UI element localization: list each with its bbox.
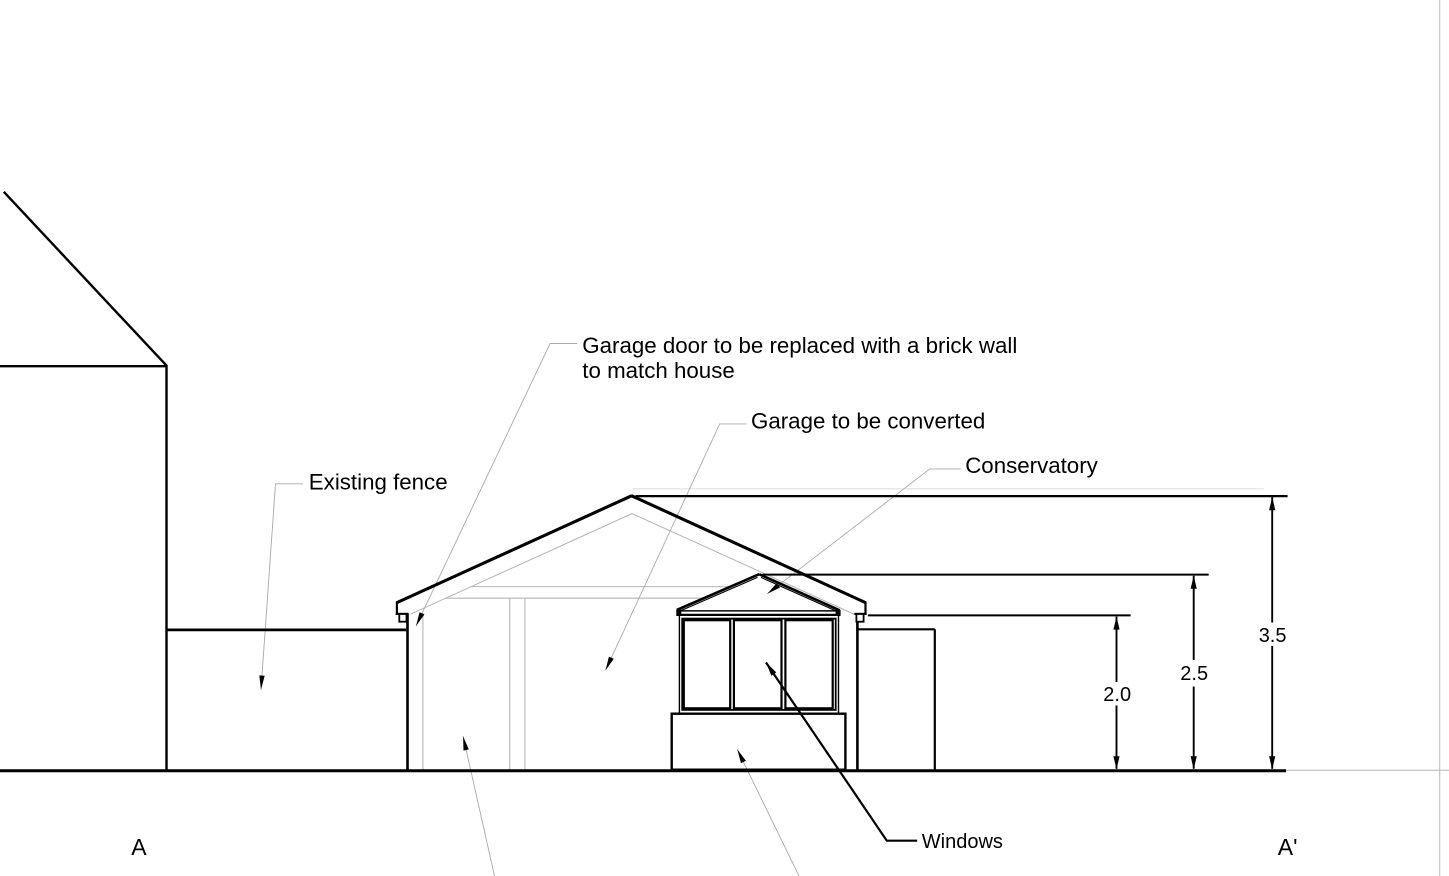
svg-text:Windows: Windows xyxy=(922,831,1003,853)
svg-text:A: A xyxy=(131,834,147,860)
svg-text:Existing fence: Existing fence xyxy=(309,470,448,495)
svg-text:A': A' xyxy=(1278,834,1298,860)
svg-text:to match house: to match house xyxy=(582,358,734,383)
svg-text:2.5: 2.5 xyxy=(1180,663,1208,685)
svg-text:Conservatory: Conservatory xyxy=(965,453,1098,478)
svg-text:2.0: 2.0 xyxy=(1103,684,1131,706)
svg-text:Garage to be converted: Garage to be converted xyxy=(751,409,985,434)
svg-text:Garage door to be replaced wit: Garage door to be replaced with a brick … xyxy=(582,333,1017,358)
svg-text:3.5: 3.5 xyxy=(1259,625,1287,647)
